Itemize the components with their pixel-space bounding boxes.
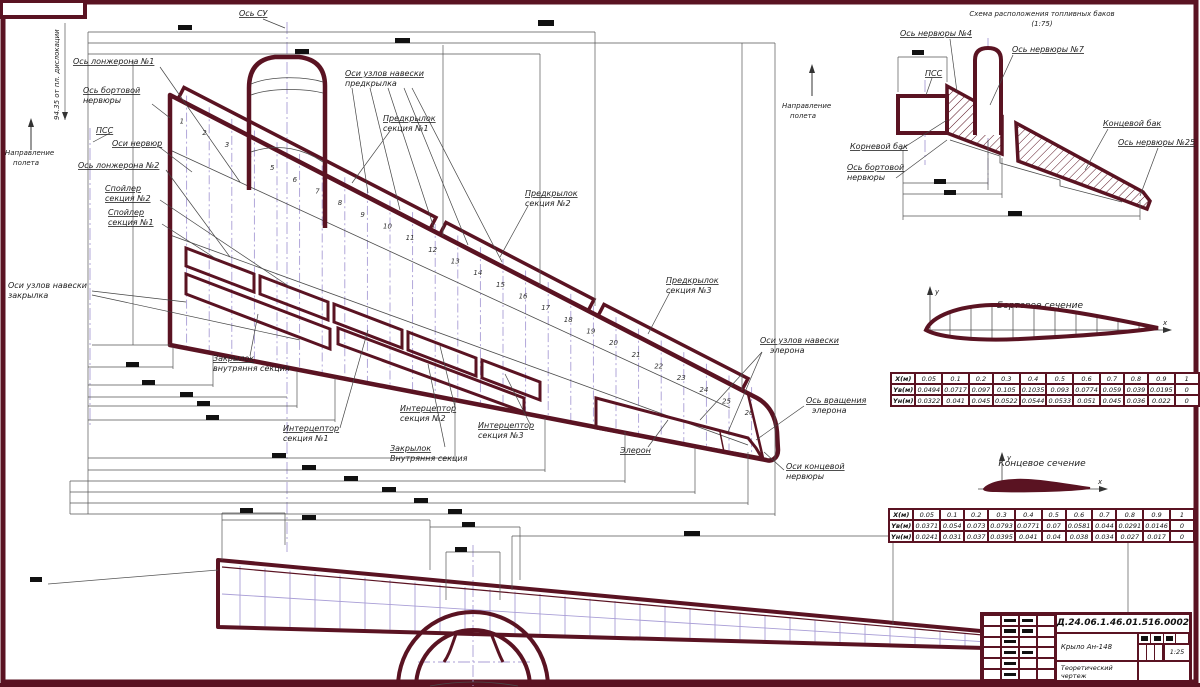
table-cell: 0.04 xyxy=(1042,531,1066,542)
station-dimension: 94.35 от пл. дислокации xyxy=(53,29,68,120)
rib-axes-label: Оси нервюр xyxy=(112,139,162,148)
x-axis-arrow-icon xyxy=(1163,327,1172,333)
fuel-scheme-scale: (1:75) xyxy=(1031,20,1052,28)
slat1-label: Предкрылок xyxy=(383,114,436,123)
rib-number: 12 xyxy=(428,246,437,254)
svg-text:секция №2: секция №2 xyxy=(525,199,571,208)
svg-text:полета: полета xyxy=(790,112,816,120)
fuel-tank-scheme: Схема расположения топливных баков (1:75… xyxy=(847,10,1195,220)
tip-tank-shape xyxy=(1016,123,1150,209)
revision-cell xyxy=(1037,658,1055,669)
corner-stamp-box xyxy=(1,1,85,17)
document-type: Теоретический чертеж xyxy=(1057,662,1139,680)
rib-number: 24 xyxy=(699,386,708,394)
table-cell: 0 xyxy=(1175,384,1199,395)
table-cell: 0.8 xyxy=(1116,509,1143,520)
table-cell: 0.054 xyxy=(940,520,964,531)
aileron-label: Элерон xyxy=(619,446,651,455)
rib-number: 21 xyxy=(632,351,641,359)
slat-hinge-label: Оси узлов навески xyxy=(345,69,424,78)
revision-cell xyxy=(1001,637,1019,648)
revision-cell xyxy=(1019,637,1037,648)
slat-section-3 xyxy=(598,305,748,391)
rib-number: 3 xyxy=(225,141,229,149)
table-cell: 0.0195 xyxy=(1148,384,1175,395)
table-cell: 0.017 xyxy=(1143,531,1170,542)
table-cell: 0.045 xyxy=(969,395,993,406)
svg-text:y: y xyxy=(934,288,940,296)
table-cell: 0.3 xyxy=(988,509,1015,520)
table-cell: 0.05 xyxy=(915,373,942,384)
fuselage-box xyxy=(898,96,947,133)
tip-airfoil-shape xyxy=(984,480,1090,492)
aileron-hinge-label: Оси узлов навески xyxy=(760,336,839,345)
table-cell: 0.5 xyxy=(1046,373,1073,384)
table-cell: 0.0533 xyxy=(1046,395,1073,406)
table-cell: 0.038 xyxy=(1066,531,1093,542)
revision-cell xyxy=(983,658,1001,669)
x-axis-arrow-icon xyxy=(1099,486,1108,492)
flap-inner2-label: Закрылок xyxy=(390,444,431,453)
tip-section: Концевое сечение y x xyxy=(978,452,1108,492)
table-cell: 0.9 xyxy=(1148,373,1175,384)
rib-number: 7 xyxy=(315,188,320,196)
flap-inner1-label: Закрылок xyxy=(213,354,254,363)
rib-number: 5 xyxy=(270,164,275,172)
rib-number: 19 xyxy=(586,327,595,335)
rib-number: 25 xyxy=(722,397,731,405)
table-cell: 0.0774 xyxy=(1073,384,1100,395)
revision-cell xyxy=(1037,626,1055,637)
table-cell: 0.0494 xyxy=(915,384,942,395)
svg-text:закрылка: закрылка xyxy=(8,291,48,300)
revision-cell xyxy=(983,615,1001,626)
y-axis-arrow-icon xyxy=(927,286,933,295)
rib-number: 14 xyxy=(473,269,482,277)
table-header-cell: X(м) xyxy=(889,509,913,520)
interceptor1-label: Интерцептор xyxy=(283,424,339,433)
table-header-cell: X(м) xyxy=(891,373,915,384)
svg-text:Направление: Направление xyxy=(782,102,831,110)
table-header-cell: Yн(м) xyxy=(889,531,913,542)
table-header-cell: Yв(м) xyxy=(891,384,915,395)
spar1-label: Ось лонжерона №1 xyxy=(73,57,154,66)
aileron-axis-label: Ось вращения xyxy=(806,396,867,405)
revision-cell xyxy=(1001,669,1019,680)
direction-label: Направление xyxy=(5,149,54,157)
front-view xyxy=(218,545,1062,687)
table-cell: 0 xyxy=(1170,531,1194,542)
rib-number: 23 xyxy=(677,374,686,382)
table-cell: 0.1035 xyxy=(1020,384,1047,395)
table-cell: 0.1 xyxy=(940,509,964,520)
revision-cell xyxy=(983,637,1001,648)
svg-text:полета: полета xyxy=(13,159,39,167)
rib-number: 15 xyxy=(496,281,505,289)
revision-cell xyxy=(1001,615,1019,626)
table-cell: 0.0322 xyxy=(915,395,942,406)
table-cell: 0.0146 xyxy=(1143,520,1170,531)
svg-text:секция №3: секция №3 xyxy=(666,286,712,295)
svg-text:секция №1: секция №1 xyxy=(383,124,429,133)
rib-number: 11 xyxy=(406,234,415,242)
table-cell: 0.3 xyxy=(993,373,1020,384)
interceptor-1-box xyxy=(334,304,402,348)
fuel-rib4-label: Ось нервюры №4 xyxy=(900,29,972,38)
approval-cell xyxy=(1139,662,1189,680)
rib-number: 9 xyxy=(360,211,365,219)
up-arrow-icon xyxy=(809,64,815,73)
table-cell: 0.105 xyxy=(993,384,1020,395)
table-cell: 0.093 xyxy=(1046,384,1073,395)
flight-direction-left: Направление полета xyxy=(5,118,54,167)
fuel-board-rib-label: Ось бортовой xyxy=(847,163,904,172)
interceptor2-label: Интерцептор xyxy=(400,404,456,413)
svg-text:y: y xyxy=(1006,454,1012,462)
svg-text:секция №1: секция №1 xyxy=(283,434,329,443)
flight-direction-right: Направление полета xyxy=(782,64,831,120)
table-header-cell: Yн(м) xyxy=(891,395,915,406)
table-cell: 0.05 xyxy=(913,509,940,520)
table-cell: 0.022 xyxy=(1148,395,1175,406)
revision-cell xyxy=(983,647,1001,658)
slat2-label: Предкрылок xyxy=(525,189,578,198)
rib-number: 20 xyxy=(609,339,618,347)
front-rib-ticks xyxy=(240,566,1040,647)
svg-text:секция №1: секция №1 xyxy=(108,218,154,227)
svg-text:нервюры: нервюры xyxy=(786,472,824,481)
table-cell: 0.6 xyxy=(1066,509,1093,520)
drawing-canvas: 1234567891011121314151617181920212223242… xyxy=(0,0,1200,687)
table-cell: 0.6 xyxy=(1073,373,1100,384)
sheet-cells xyxy=(1139,645,1165,660)
table-cell: 0.041 xyxy=(1015,531,1042,542)
table-cell: 0.034 xyxy=(1092,531,1116,542)
tip-tank-label: Концевой бак xyxy=(1103,119,1161,128)
svg-text:секция №3: секция №3 xyxy=(478,431,524,440)
table-cell: 0.0395 xyxy=(988,531,1015,542)
title-block-revision-grid xyxy=(983,615,1057,680)
slat-section-1 xyxy=(178,88,436,230)
rib-number: 1 xyxy=(180,118,184,126)
rear-spar-line xyxy=(170,235,748,445)
revision-cell xyxy=(1037,637,1055,648)
revision-cell xyxy=(1019,615,1037,626)
table-cell: 0.0717 xyxy=(942,384,969,395)
revision-cell xyxy=(1001,658,1019,669)
table-cell: 0.4 xyxy=(1020,373,1047,384)
interceptor3-label: Интерцептор xyxy=(478,421,534,430)
table-cell: 0.0544 xyxy=(1020,395,1047,406)
y-axis-arrow-icon xyxy=(999,452,1005,461)
plan-labels: Ось СУ Ось лонжерона №1 Ось бортовой нер… xyxy=(8,9,867,481)
revision-cell xyxy=(983,626,1001,637)
svg-text:секция №2: секция №2 xyxy=(105,194,151,203)
svg-text:внутряння секция: внутряння секция xyxy=(213,364,290,373)
fuel-rib7-label: Ось нервюры №7 xyxy=(1012,45,1085,54)
svg-text:Внутряння секция: Внутряння секция xyxy=(390,454,468,463)
drawing-scale: 1:25 xyxy=(1165,645,1189,660)
rib-number: 17 xyxy=(541,304,550,312)
pss-label: ПСС xyxy=(96,126,114,135)
table-cell: 0.031 xyxy=(940,531,964,542)
table-cell: 0.9 xyxy=(1143,509,1170,520)
revision-cell xyxy=(1037,669,1055,680)
table-cell: 0.027 xyxy=(1116,531,1143,542)
svg-text:элерона: элерона xyxy=(770,346,805,355)
revision-cell xyxy=(1037,647,1055,658)
table-cell: 0 xyxy=(1175,395,1199,406)
table-cell: 0.5 xyxy=(1042,509,1066,520)
rib-number: 13 xyxy=(451,258,460,266)
revision-cell xyxy=(1001,647,1019,658)
drawing-name: Крыло Ан-148 xyxy=(1057,634,1139,660)
title-block-header-cells xyxy=(1139,634,1189,645)
svg-text:секция №2: секция №2 xyxy=(400,414,446,423)
spar2-label: Ось лонжерона №2 xyxy=(78,161,159,170)
up-arrow-icon xyxy=(28,118,34,127)
table-cell: 0.045 xyxy=(1100,395,1124,406)
drawing-sheet: 1234567891011121314151617181920212223242… xyxy=(0,0,1200,687)
revision-cell xyxy=(1019,669,1037,680)
table-cell: 0.2 xyxy=(964,509,988,520)
table-cell: 0.7 xyxy=(1092,509,1116,520)
tip-section-table: X(м)0.050.10.20.30.40.50.60.70.80.91Yв(м… xyxy=(888,508,1195,543)
table-cell: 0.7 xyxy=(1100,373,1124,384)
flap-hinge-label: Оси узлов навески xyxy=(8,281,87,290)
rib-number: 6 xyxy=(293,176,298,184)
title-block: Д.24.06.1.46.01.516.0002 Крыло Ан-148 1:… xyxy=(980,612,1192,683)
table-cell: 0.1 xyxy=(942,373,969,384)
table-cell: 1 xyxy=(1175,373,1199,384)
rib-number: 18 xyxy=(564,316,573,324)
revision-cell xyxy=(1019,626,1037,637)
table-cell: 0.0371 xyxy=(913,520,940,531)
fuel-pss-label: ПСС xyxy=(925,69,943,78)
table-cell: 0.0241 xyxy=(913,531,940,542)
spoiler2-label: Спойлер xyxy=(105,184,141,193)
svg-text:предкрылка: предкрылка xyxy=(345,79,397,88)
spoiler1-label: Спойлер xyxy=(108,208,144,217)
nacelle-inner-arc xyxy=(416,630,530,687)
tip-section-title: Концевое сечение xyxy=(998,459,1086,469)
fuel-scheme-title: Схема расположения топливных баков xyxy=(969,10,1114,18)
table-cell: 0.039 xyxy=(1124,384,1148,395)
svg-text:x: x xyxy=(1162,319,1168,327)
table-header-cell: Yв(м) xyxy=(889,520,913,531)
svg-text:нервюры: нервюры xyxy=(847,173,885,182)
drawing-code: Д.24.06.1.46.01.516.0002 xyxy=(1057,615,1189,634)
table-cell: 0.036 xyxy=(1124,395,1148,406)
table-cell: 0.044 xyxy=(1092,520,1116,531)
svg-text:x: x xyxy=(1097,478,1103,486)
table-cell: 0.051 xyxy=(1073,395,1100,406)
board-rib-label: Ось бортовой xyxy=(83,86,140,95)
sheet-frame xyxy=(0,1,1200,687)
fuel-nacelle-shape xyxy=(975,48,1001,135)
revision-cell xyxy=(1001,626,1019,637)
board-section-table: X(м)0.050.10.20.30.40.50.60.70.80.91Yв(м… xyxy=(890,372,1200,407)
table-cell: 0.0291 xyxy=(1116,520,1143,531)
rib-number: 22 xyxy=(654,362,663,370)
table-cell: 0.037 xyxy=(964,531,988,542)
board-section: Бортовое сечение y x xyxy=(924,286,1172,340)
revision-cell xyxy=(1037,615,1055,626)
rib-number: 10 xyxy=(383,223,392,231)
slat3-label: Предкрылок xyxy=(666,276,719,285)
revision-cell xyxy=(1019,658,1037,669)
table-cell: 1 xyxy=(1170,509,1194,520)
pylon-right-edge xyxy=(492,636,503,662)
table-cell: 0.0771 xyxy=(1015,520,1042,531)
table-cell: 0.041 xyxy=(942,395,969,406)
table-cell: 0 xyxy=(1170,520,1194,531)
table-cell: 0.0522 xyxy=(993,395,1020,406)
svg-text:элерона: элерона xyxy=(812,406,847,415)
spoiler-2-box xyxy=(260,276,328,320)
station-label: 94.35 от пл. дислокации xyxy=(53,29,61,120)
svg-text:нервюры: нервюры xyxy=(83,96,121,105)
table-cell: 0.07 xyxy=(1042,520,1066,531)
table-cell: 0.097 xyxy=(969,384,993,395)
fuel-rib25-label: Ось нервюры №25 xyxy=(1118,138,1195,147)
revision-cell xyxy=(983,669,1001,680)
engine-axis-label: Ось СУ xyxy=(239,9,269,18)
table-cell: 0.8 xyxy=(1124,373,1148,384)
rib-number: 16 xyxy=(519,292,528,300)
rib-number: 8 xyxy=(338,199,343,207)
table-cell: 0.4 xyxy=(1015,509,1042,520)
table-cell: 0.073 xyxy=(964,520,988,531)
table-cell: 0.2 xyxy=(969,373,993,384)
root-tank-label: Корневой бак xyxy=(850,142,908,151)
tip-rib-label: Оси концевой xyxy=(786,462,845,471)
revision-cell xyxy=(1019,647,1037,658)
table-cell: 0.0581 xyxy=(1066,520,1093,531)
table-cell: 0.0793 xyxy=(988,520,1015,531)
table-cell: 0.059 xyxy=(1100,384,1124,395)
